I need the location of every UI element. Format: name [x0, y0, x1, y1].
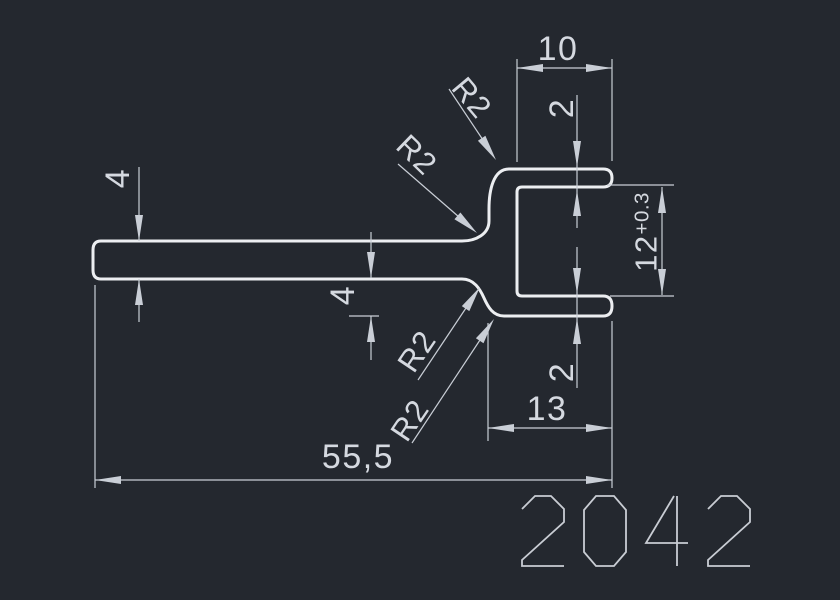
opening-tolerance: +0.3 [631, 192, 654, 234]
dimension-lines [95, 59, 674, 488]
arrowhead [586, 64, 612, 72]
part-number-digit [584, 496, 626, 566]
arrowhead [488, 424, 514, 432]
arrowhead [454, 213, 477, 234]
arrowhead [573, 268, 581, 294]
arrowhead [95, 476, 121, 484]
arrowhead [586, 476, 612, 484]
arrowhead [476, 319, 494, 343]
arrowhead [462, 287, 480, 311]
dim-label-overall-length: 55,5 [322, 440, 394, 474]
dim-label-arm-drop: 4 [326, 285, 360, 305]
dim-label-bar-thickness: 4 [101, 168, 135, 188]
dim-label-opening-height: 12+0.3 [631, 192, 662, 272]
drawing-canvas [0, 0, 840, 600]
part-number-digit [708, 496, 750, 566]
part-number-digit [646, 496, 688, 566]
arrowhead [658, 269, 666, 295]
cad-viewport: 10 2 12+0.3 2 13 55,5 4 4 R2 R2 R2 R2 [0, 0, 840, 600]
arrowhead [573, 190, 581, 216]
arrowhead [367, 252, 375, 278]
opening-value: 12 [629, 234, 664, 271]
arrowhead [586, 424, 612, 432]
dim-label-bottom-flange-length: 13 [527, 392, 568, 426]
arrowhead [478, 136, 496, 160]
part-number-digit [522, 496, 564, 566]
arrowhead [135, 279, 143, 305]
arrowhead [135, 215, 143, 241]
part-number [522, 496, 750, 566]
arrowhead [573, 318, 581, 344]
arrowhead [573, 141, 581, 167]
dim-label-bottom-flange-thickness: 2 [545, 362, 579, 382]
dim-label-top-flange-length: 10 [538, 32, 579, 66]
dimension-arrowheads [95, 64, 666, 484]
arrowhead [367, 316, 375, 342]
dim-label-top-flange-thickness: 2 [545, 98, 579, 118]
